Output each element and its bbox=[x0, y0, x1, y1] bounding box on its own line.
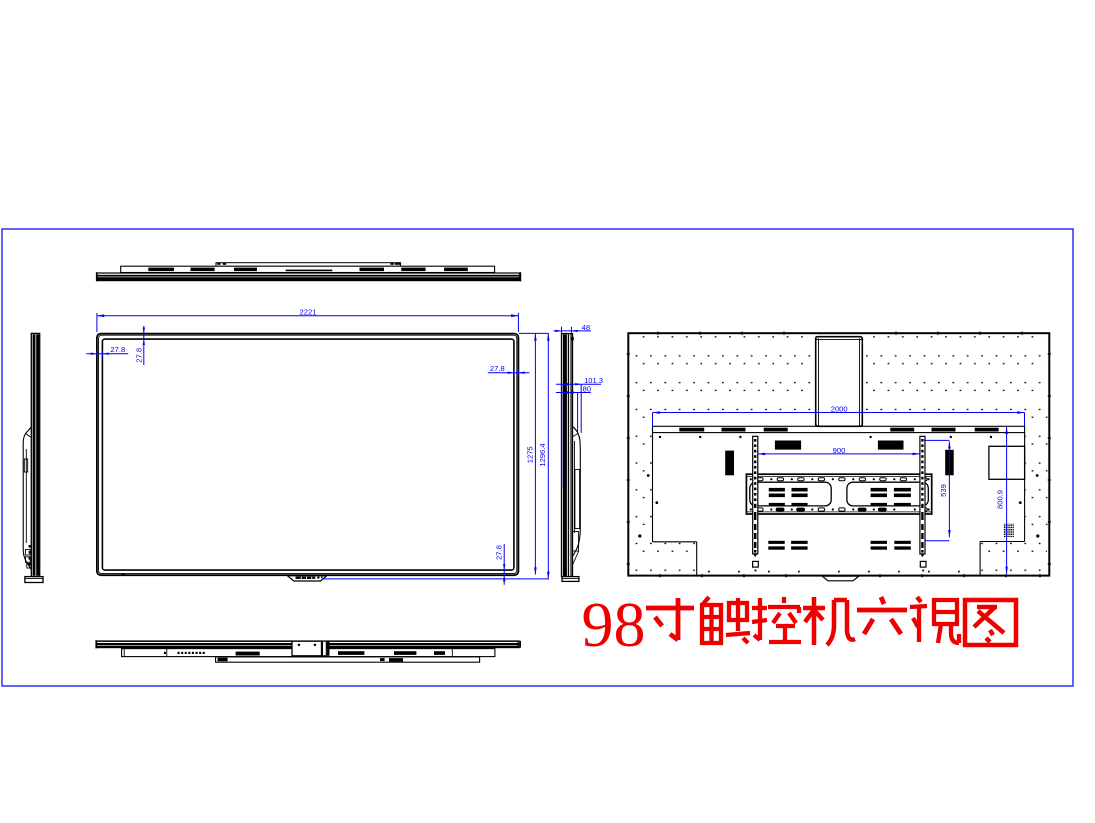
svg-text:900: 900 bbox=[833, 446, 846, 455]
svg-text:1275: 1275 bbox=[525, 446, 534, 463]
svg-text:539: 539 bbox=[939, 484, 948, 497]
svg-text:2000: 2000 bbox=[831, 404, 848, 413]
svg-text:27.8: 27.8 bbox=[494, 545, 503, 560]
svg-text:27.8: 27.8 bbox=[135, 348, 144, 363]
svg-text:1296.4: 1296.4 bbox=[538, 443, 547, 466]
svg-text:27.8: 27.8 bbox=[490, 364, 505, 373]
svg-text:80: 80 bbox=[583, 384, 591, 393]
svg-text:48: 48 bbox=[582, 323, 590, 332]
svg-text:800.9: 800.9 bbox=[996, 490, 1005, 509]
svg-text:2221: 2221 bbox=[300, 308, 317, 317]
svg-text:27.8: 27.8 bbox=[110, 345, 125, 354]
svg-text:98: 98 bbox=[582, 589, 646, 660]
